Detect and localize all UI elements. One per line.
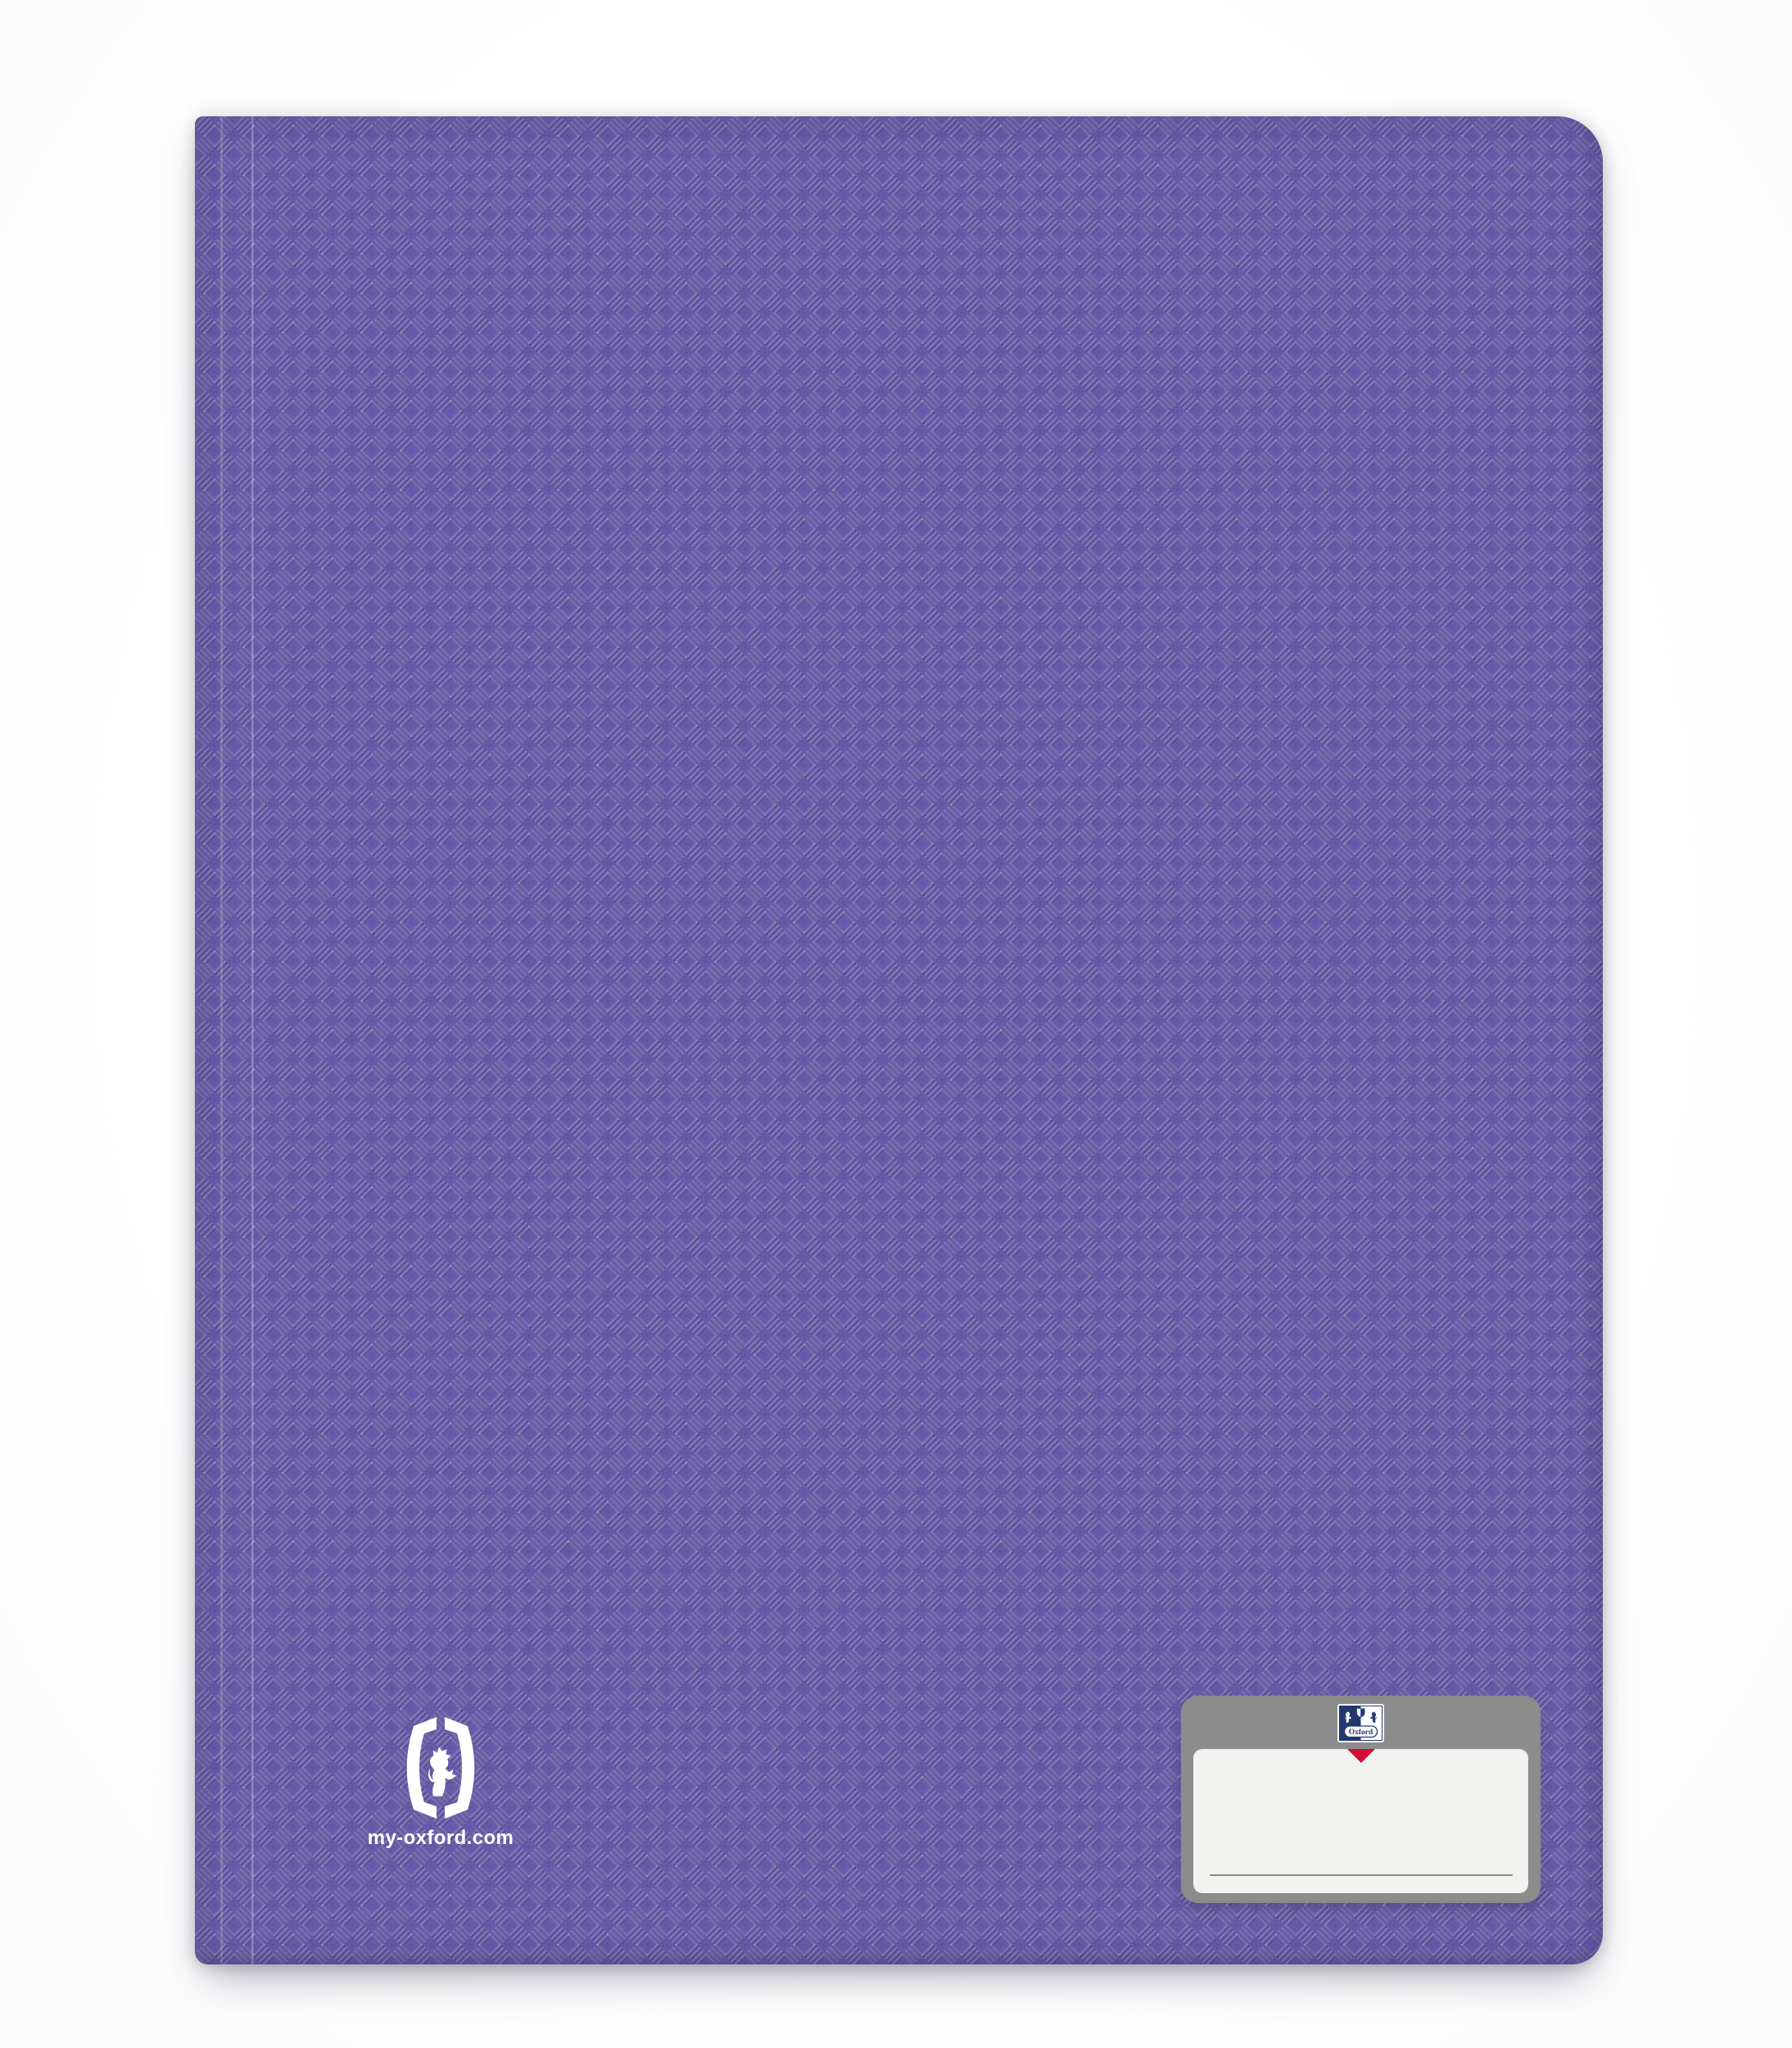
left-bracket-icon <box>407 1717 437 1819</box>
name-writing-line <box>1210 1874 1513 1876</box>
cover-texture-pattern <box>195 116 1603 1964</box>
product-photo: my-oxford.com Oxford <box>0 0 1792 2048</box>
brand-website: my-oxford.com <box>334 1827 547 1850</box>
crest-wordmark: Oxford <box>1349 1729 1373 1737</box>
folder-cover: my-oxford.com Oxford <box>195 116 1603 1964</box>
oxford-lion-logo <box>396 1716 486 1819</box>
name-label-plate: Oxford <box>1181 1696 1541 1903</box>
red-arrow-icon <box>1347 1749 1375 1763</box>
name-label-field <box>1193 1749 1528 1893</box>
right-bracket-icon <box>445 1717 474 1819</box>
oxford-crest-logo: Oxford <box>1337 1704 1384 1742</box>
brand-mark: my-oxford.com <box>334 1716 547 1850</box>
